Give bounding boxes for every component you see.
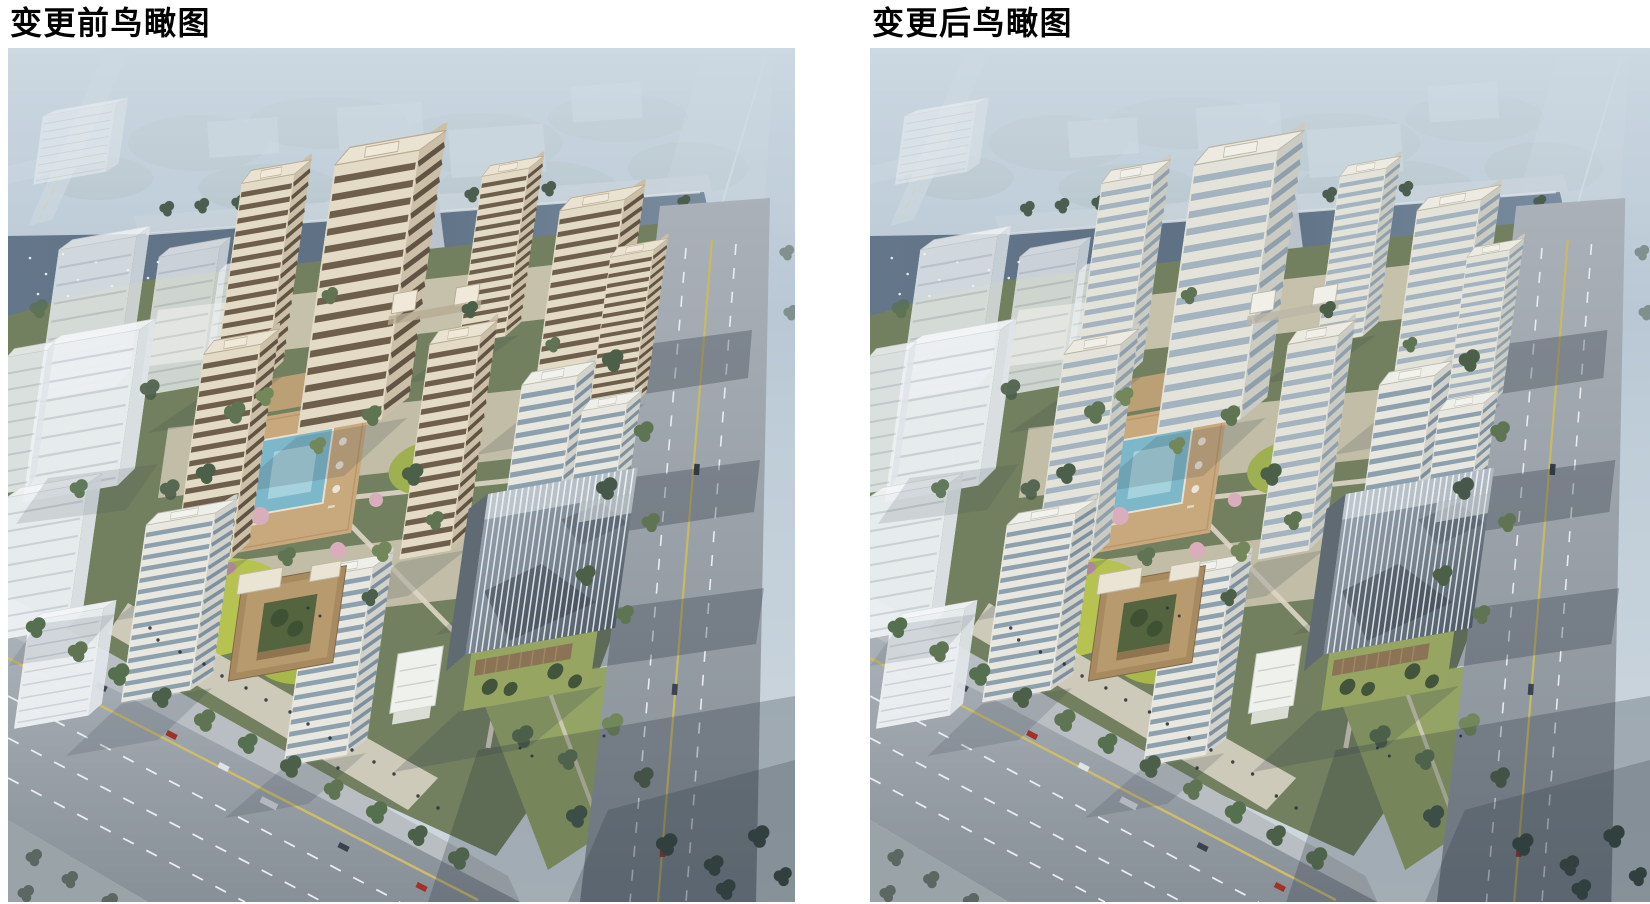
caption-before-change: 变更前鸟瞰图 — [10, 6, 795, 40]
caption-after-change: 变更后鸟瞰图 — [872, 6, 1650, 40]
figure-after-change: 变更后鸟瞰图 — [870, 0, 1650, 902]
figure-before-change: 变更前鸟瞰图 — [8, 0, 795, 902]
aerial-render-after — [870, 48, 1650, 902]
aerial-render-before — [8, 48, 795, 902]
page: 变更前鸟瞰图 变更后鸟瞰图 — [0, 0, 1650, 904]
